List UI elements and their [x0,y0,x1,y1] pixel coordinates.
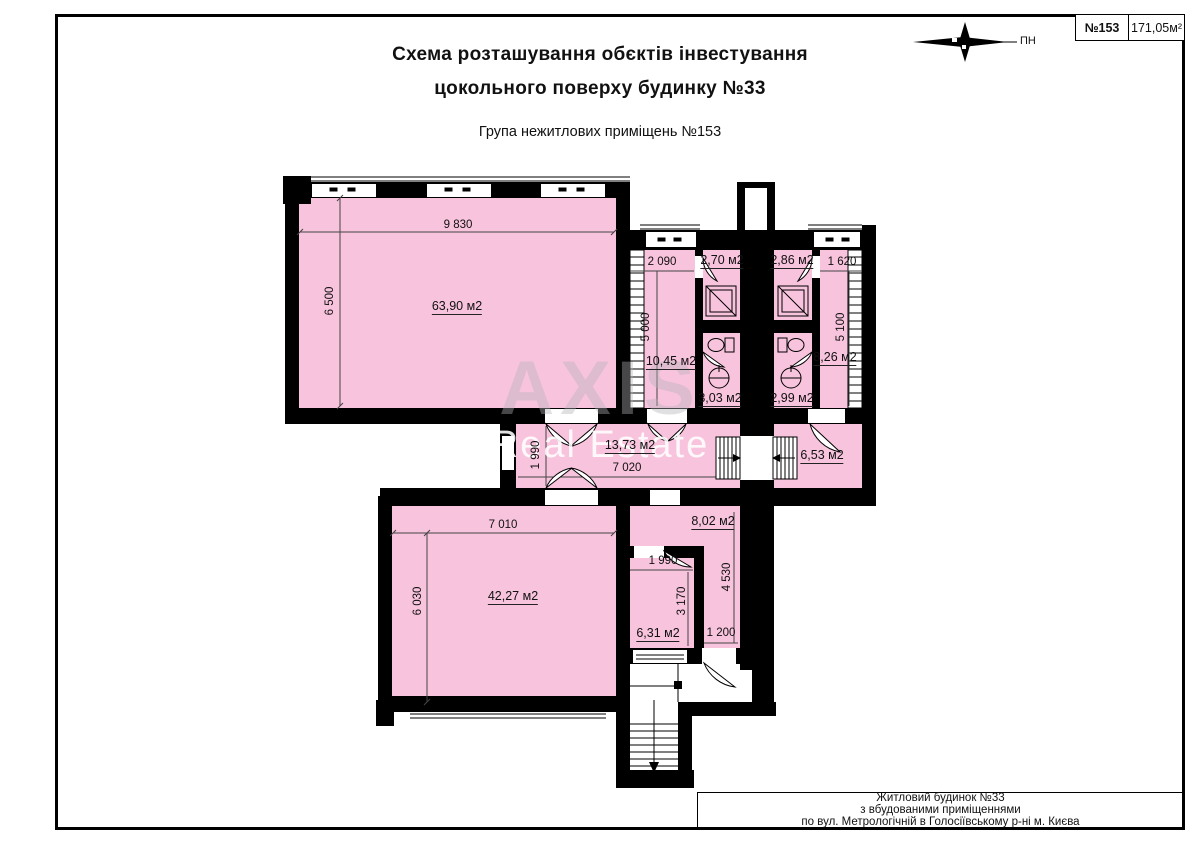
room-label-3-03: 3,03 м2 [698,391,741,407]
dim-label-6500: 6 500 [324,287,336,316]
title-block-line1: Житловий будинок №33 [876,792,1004,804]
room-label-2-70: 2,70 м2 [700,253,743,269]
dim-label-4530: 4 530 [721,563,733,592]
title-block-line3: по вул. Метрологічній в Голосіївському р… [801,816,1079,828]
dim-label-9830: 9 830 [444,219,473,231]
watermark-brand-sub: Real Estate [455,424,745,467]
exit-stairs [630,664,682,773]
room-label-6-31: 6,31 м2 [636,626,679,642]
title-block-line2: з вбудованими приміщеннями [860,804,1020,816]
shower-icon [778,286,808,316]
room-label-8-02: 8,02 м2 [691,514,734,530]
room-label-13-73: 13,73 м2 [605,438,655,454]
watermark-brand: AXIS [455,345,745,432]
dim-label-2090: 2 090 [648,256,677,268]
room-label-6-53: 6,53 м2 [800,448,843,464]
dim-label-1990-small: 1 990 [649,555,678,567]
room-label-2-99: 2,99 м2 [770,391,813,407]
dim-label-1200: 1 200 [707,627,736,639]
dim-label-7020: 7 020 [613,462,642,474]
dim-label-5100: 5 100 [835,313,847,342]
shower-icon [706,286,736,316]
dim-label-5000: 5 000 [640,313,652,342]
dim-label-6030: 6 030 [412,587,424,616]
dim-label-1990-corridor: 1 990 [530,441,542,470]
dim-label-1620: 1 620 [828,256,857,268]
room-label-42-27: 42,27 м2 [488,589,538,605]
drawing-page: Схема розташування обєктів інвестування … [0,0,1200,848]
title-block: Житловий будинок №33 з вбудованими примі… [697,792,1183,827]
room-label-2-86: 2,86 м2 [770,253,813,269]
room-label-10-45: 10,45 м2 [646,354,696,370]
room-label-8-26: 8,26 м2 [813,350,856,366]
room-label-63-90: 63,90 м2 [432,299,482,315]
dim-label-7010: 7 010 [489,519,518,531]
dim-label-3170: 3 170 [676,587,688,616]
